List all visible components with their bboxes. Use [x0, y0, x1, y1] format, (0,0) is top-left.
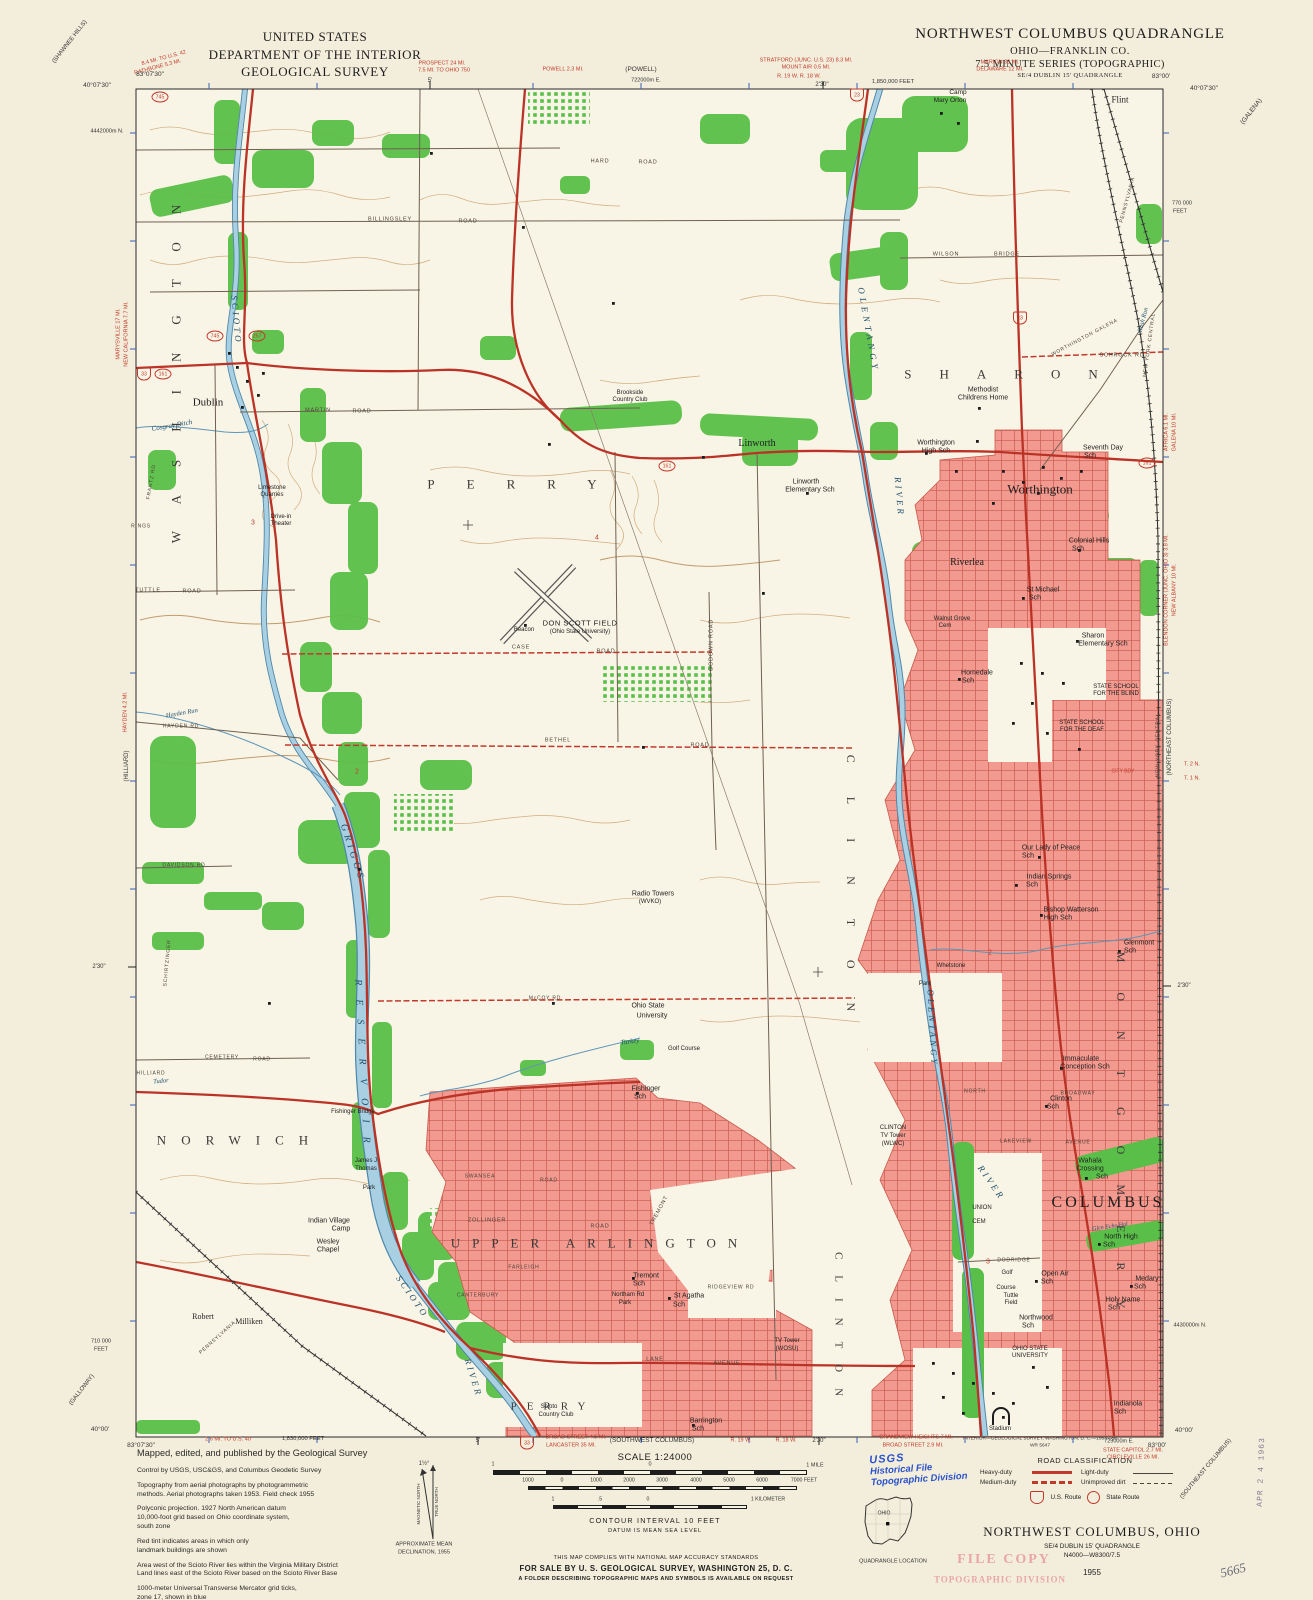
legend-label: Unimproved dirt — [1081, 1479, 1133, 1486]
road-classification-legend: ROAD CLASSIFICATION Heavy-dutyLight-duty… — [980, 1456, 1190, 1504]
legend-sample-medium — [1032, 1480, 1072, 1486]
scalebar-feet — [528, 1486, 797, 1490]
credit-line: Control by USGS, USC&GS, and Columbus Ge… — [137, 1467, 472, 1476]
agency-header: UNITED STATES DEPARTMENT OF THE INTERIOR… — [150, 28, 480, 81]
quad-title: NORTHWEST COLUMBUS QUADRANGLE — [840, 26, 1300, 43]
usgs-library-stamp: USGS Historical File Topographic Divisio… — [869, 1448, 968, 1489]
state-route-label: State Route — [1106, 1494, 1139, 1501]
scale-label: SCALE 1:24000 — [440, 1452, 870, 1463]
compliance-note: THIS MAP COMPLIES WITH NATIONAL MAP ACCU… — [400, 1555, 912, 1561]
credit-line: 1000-meter Universal Transverse Mercator… — [137, 1585, 472, 1600]
credit-line: Polyconic projection. 1927 North America… — [137, 1505, 472, 1531]
us-route-label: U.S. Route — [1050, 1494, 1081, 1501]
agency-line: GEOLOGICAL SURVEY — [150, 63, 480, 81]
contour-note: CONTOUR INTERVAL 10 FEET DATUM IS MEAN S… — [440, 1516, 870, 1534]
sheet-note2: N4000—W8300/7.5 — [972, 1552, 1212, 1559]
quad-title-block: NORTHWEST COLUMBUS QUADRANGLE OHIO—FRANK… — [840, 26, 1300, 79]
agency-line: UNITED STATES — [150, 28, 480, 46]
legend-label: Medium-duty — [980, 1479, 1032, 1486]
quad-subtitle: OHIO—FRANKLIN CO. — [840, 46, 1300, 57]
credit-line: Red tint indicates areas in which only l… — [137, 1538, 472, 1556]
topo-map-canvas — [0, 0, 1313, 1600]
legend-sample-dirt — [1133, 1480, 1173, 1486]
sheet-title-block: NORTHWEST COLUMBUS, OHIO SE/4 DUBLIN 15'… — [972, 1524, 1212, 1577]
sheet-year: 1955 — [972, 1568, 1212, 1577]
compliance-block: THIS MAP COMPLIES WITH NATIONAL MAP ACCU… — [400, 1555, 912, 1582]
sheet-note1: SE/4 DUBLIN 15' QUADRANGLE — [972, 1543, 1212, 1550]
us-route-shield-icon — [1030, 1491, 1044, 1504]
sheet-name: NORTHWEST COLUMBUS, OHIO — [972, 1524, 1212, 1540]
sale-note: FOR SALE BY U. S. GEOLOGICAL SURVEY, WAS… — [400, 1564, 912, 1573]
map-sheet: UNITED STATES DEPARTMENT OF THE INTERIOR… — [0, 0, 1313, 1600]
quad-series: 7.5 MINUTE SERIES (TOPOGRAPHIC) — [840, 59, 1300, 70]
credit-line: Topography from aerial photographs by ph… — [137, 1482, 472, 1500]
credit-line: Mapped, edited, and published by the Geo… — [137, 1448, 472, 1460]
folder-note: A FOLDER DESCRIBING TOPOGRAPHIC MAPS AND… — [400, 1576, 912, 1582]
quad-location-dot — [886, 1522, 889, 1525]
contour-interval: CONTOUR INTERVAL 10 FEET — [440, 1516, 870, 1525]
scalebar-miles — [493, 1470, 807, 1475]
quad-note: SE/4 DUBLIN 15' QUADRANGLE — [840, 72, 1300, 79]
scalebar-kilometers — [553, 1505, 747, 1509]
state-route-circle-icon — [1087, 1491, 1100, 1504]
legend-title: ROAD CLASSIFICATION — [980, 1456, 1190, 1465]
agency-line: DEPARTMENT OF THE INTERIOR — [150, 46, 480, 64]
legend-sample-light — [1133, 1470, 1173, 1476]
legend-label: Light-duty — [1081, 1469, 1133, 1476]
legend-sample-heavy — [1032, 1470, 1072, 1476]
datum-note: DATUM IS MEAN SEA LEVEL — [440, 1528, 870, 1534]
legend-label: Heavy-duty — [980, 1469, 1032, 1476]
